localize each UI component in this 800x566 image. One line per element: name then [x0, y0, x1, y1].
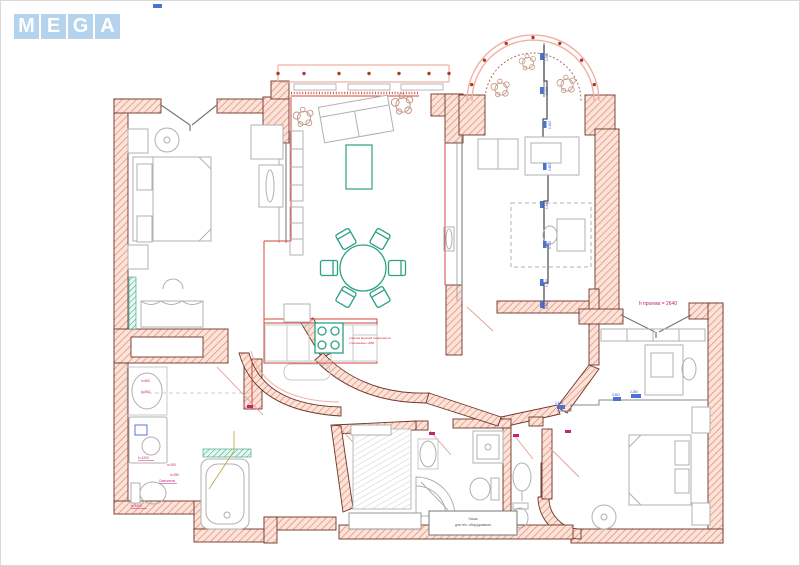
- logo-letter-tile: G: [68, 14, 93, 39]
- bookshelf: [290, 131, 303, 255]
- logo-letter-tile: E: [41, 14, 66, 39]
- bathA-toilet: [470, 478, 499, 500]
- dimension-label: 0.600: [548, 163, 552, 171]
- tub-height-label: h=200: [167, 463, 176, 467]
- bedroom2-door: [621, 315, 691, 338]
- round-table: [592, 505, 616, 529]
- plant-icon: [557, 75, 575, 93]
- thin-partitions: [279, 43, 708, 411]
- kitchen-note-line2: столешницы +850: [349, 341, 374, 345]
- bathA-sink: [418, 439, 438, 469]
- nightstand: [128, 245, 148, 269]
- dimension-label: 0.800: [545, 301, 549, 309]
- bedroom1-bed: [133, 157, 211, 242]
- dimension-label: 1.200: [548, 121, 552, 129]
- scan-mark: [153, 4, 162, 8]
- coffee-table: [346, 145, 372, 189]
- nightstand: [128, 129, 148, 153]
- threshold-strip: [203, 449, 251, 457]
- wardrobe-shelving: [353, 429, 411, 509]
- dimension-label: 2.280: [630, 390, 638, 394]
- sink-height-label: h=900: [141, 390, 150, 394]
- doorway-height-label: h проема = 2640: [639, 301, 677, 307]
- bathB-sink: [513, 463, 531, 501]
- dimension-label: 1.440: [555, 401, 563, 405]
- office-desk-1: [478, 139, 518, 169]
- chair: [163, 279, 183, 289]
- balcony-sills: [294, 84, 443, 90]
- bedroom2-closet: [601, 329, 705, 341]
- wardrobe: [251, 125, 283, 159]
- nightstand: [692, 407, 710, 433]
- scanned-floor-plan-page: M E G A: [0, 0, 800, 566]
- bedroom2-desk: [645, 345, 696, 395]
- plant-icon: [293, 107, 313, 126]
- mega-logo: M E G A: [14, 14, 120, 39]
- radiator-strip: [129, 277, 136, 329]
- toilet-height-label: h=1000: [131, 504, 142, 508]
- corner-shower: [416, 477, 455, 516]
- console-mirror: [259, 165, 283, 207]
- shower-cabin: [473, 431, 503, 463]
- sink-height-label: h=500: [141, 379, 150, 383]
- kitchen-note-line1: отметка верхней поверхности: [349, 336, 391, 340]
- plant-icon: [491, 79, 509, 97]
- plant-icon: [519, 54, 536, 70]
- stove: [315, 323, 343, 353]
- washer-height-label: h=1200: [138, 456, 149, 460]
- tv-cabinet: [284, 304, 310, 322]
- sofa: [318, 95, 393, 143]
- wall-niches: [131, 337, 203, 357]
- wardrobe-shelf: [351, 425, 391, 435]
- logo-letter-tile: M: [14, 14, 39, 39]
- logo-letter-tile: A: [95, 14, 120, 39]
- tub-height-label: h=250: [170, 473, 179, 477]
- dimension-label: 0.600: [612, 393, 620, 397]
- lower-shelf: [349, 513, 421, 529]
- bedroom1-door: [161, 105, 217, 131]
- dimension-label: 1.100: [545, 279, 549, 287]
- office-desk-2: [525, 137, 579, 175]
- dining-set: [321, 228, 406, 308]
- mixer-label: Смеситель: [159, 479, 176, 483]
- dresser: [141, 301, 203, 327]
- dimension-label: 0.700: [548, 241, 552, 249]
- niche-label-line1: Ниша: [469, 517, 478, 521]
- dimension-label: 1.480: [545, 201, 549, 209]
- niche-label-line2: для тех. оборудования: [455, 523, 491, 527]
- dimension-label: 1.500: [545, 53, 549, 61]
- nightstand: [692, 503, 710, 525]
- dimension-label: 0.900: [545, 87, 549, 95]
- bathtub: [201, 459, 249, 529]
- side-table: [155, 128, 179, 152]
- bedroom2-bed: [629, 435, 691, 505]
- floor-plan-drawing: 1.500 0.900 1.200 0.600 1.480 0.700 1.10…: [1, 1, 800, 566]
